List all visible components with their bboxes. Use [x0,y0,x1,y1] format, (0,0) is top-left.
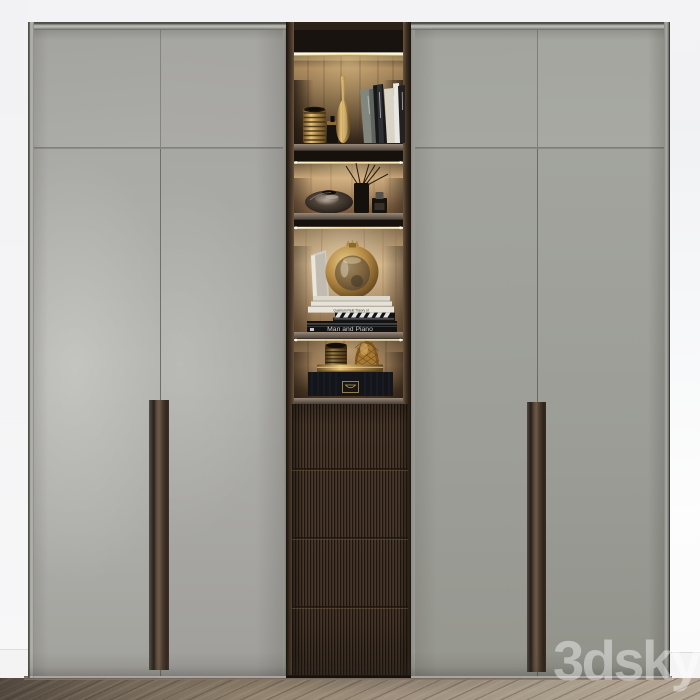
svg-text:Man and Piano: Man and Piano [327,326,373,333]
svg-text:Quantum Field Theory of: Quantum Field Theory of [333,308,368,312]
